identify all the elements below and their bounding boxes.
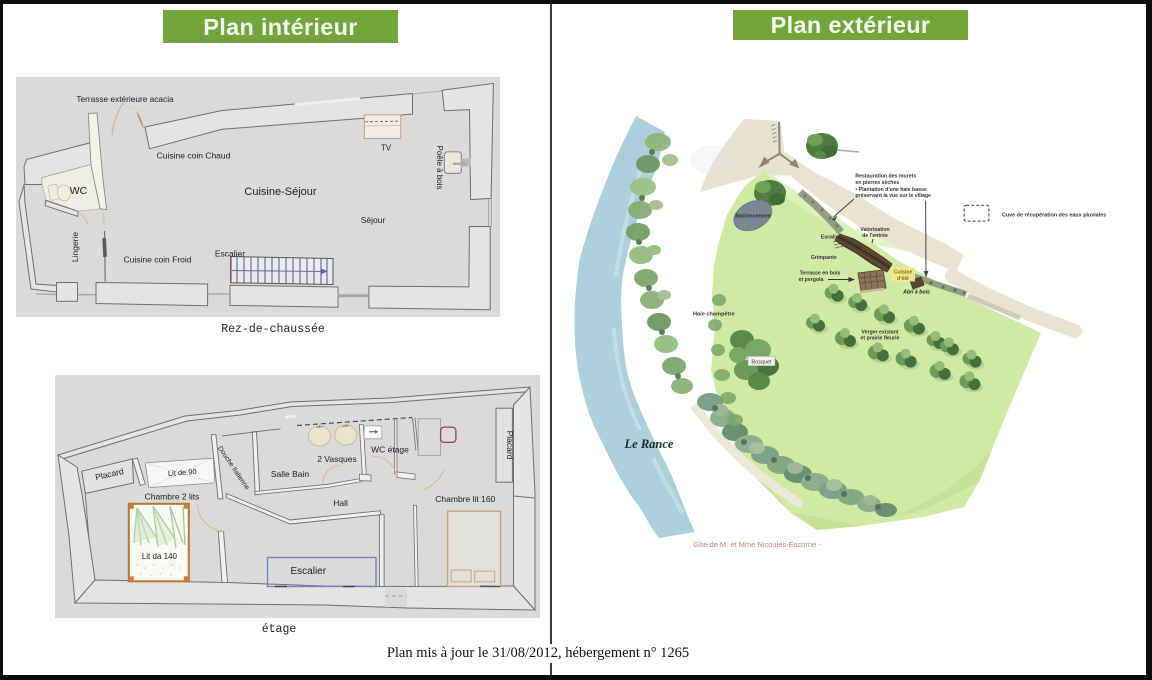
- svg-text:de l'entrée: de l'entrée: [862, 233, 888, 239]
- svg-text:Poêle à bois: Poêle à bois: [435, 145, 444, 189]
- svg-text:Verger existant: Verger existant: [861, 329, 898, 335]
- svg-text:en pierres sèches: en pierres sèches: [855, 180, 899, 186]
- svg-text:et pergola: et pergola: [799, 277, 824, 283]
- svg-text:Restauration des murets: Restauration des murets: [855, 174, 916, 180]
- svg-text:Abri à bois: Abri à bois: [902, 290, 930, 296]
- svg-text:WC étage: WC étage: [371, 445, 409, 455]
- svg-text:Gîte de M. et Mme Nicoules-Esc: Gîte de M. et Mme Nicoules-Escorne -: [693, 540, 821, 549]
- svg-text:Terrasse extérieure acacia: Terrasse extérieure acacia: [76, 94, 174, 104]
- svg-text:2 Vasques: 2 Vasques: [317, 454, 357, 464]
- svg-text:et prairie fleurie: et prairie fleurie: [861, 336, 900, 342]
- svg-text:Escalier: Escalier: [821, 235, 841, 241]
- svg-text:Escalier: Escalier: [215, 249, 245, 259]
- svg-text:Escalier: Escalier: [291, 566, 327, 577]
- svg-text:préservant la vue sur le villa: préservant la vue sur le village: [855, 193, 931, 199]
- svg-text:Haie champêtre: Haie champêtre: [693, 312, 735, 318]
- svg-text:Chambre lit 160: Chambre lit 160: [435, 494, 495, 504]
- svg-text:Bosquet: Bosquet: [751, 359, 772, 365]
- svg-text:Cuisine: Cuisine: [894, 270, 913, 276]
- svg-text:Le Rance: Le Rance: [624, 437, 674, 451]
- svg-text:Grimpante: Grimpante: [811, 255, 837, 261]
- svg-text:WC: WC: [70, 185, 88, 197]
- svg-text:Lit da 140: Lit da 140: [142, 552, 178, 561]
- svg-text:Lingerie: Lingerie: [70, 232, 80, 263]
- svg-text:Valorisation: Valorisation: [860, 227, 889, 233]
- svg-text:Stationnement: Stationnement: [735, 214, 771, 220]
- svg-text:Placard: Placard: [505, 431, 515, 460]
- svg-text:Séjour: Séjour: [361, 215, 386, 225]
- svg-text:d'été: d'été: [897, 276, 909, 282]
- svg-text:Salle Bain: Salle Bain: [271, 469, 310, 479]
- svg-text:Cuisine coin Chaud: Cuisine coin Chaud: [157, 151, 231, 161]
- svg-text:Cuisine-Séjour: Cuisine-Séjour: [244, 186, 316, 198]
- svg-text:TV: TV: [381, 144, 392, 153]
- svg-text:Chambre 2 lits: Chambre 2 lits: [145, 492, 200, 502]
- svg-text:Cuve de récupération des eaux: Cuve de récupération des eaux pluviales: [1002, 213, 1106, 219]
- svg-text:Terrasse en bois: Terrasse en bois: [800, 271, 841, 277]
- svg-text:Cuisine coin Froid: Cuisine coin Froid: [123, 255, 191, 265]
- svg-text:Hall: Hall: [333, 498, 348, 508]
- svg-text:• Plantation d'une haie basse: • Plantation d'une haie basse: [855, 187, 926, 193]
